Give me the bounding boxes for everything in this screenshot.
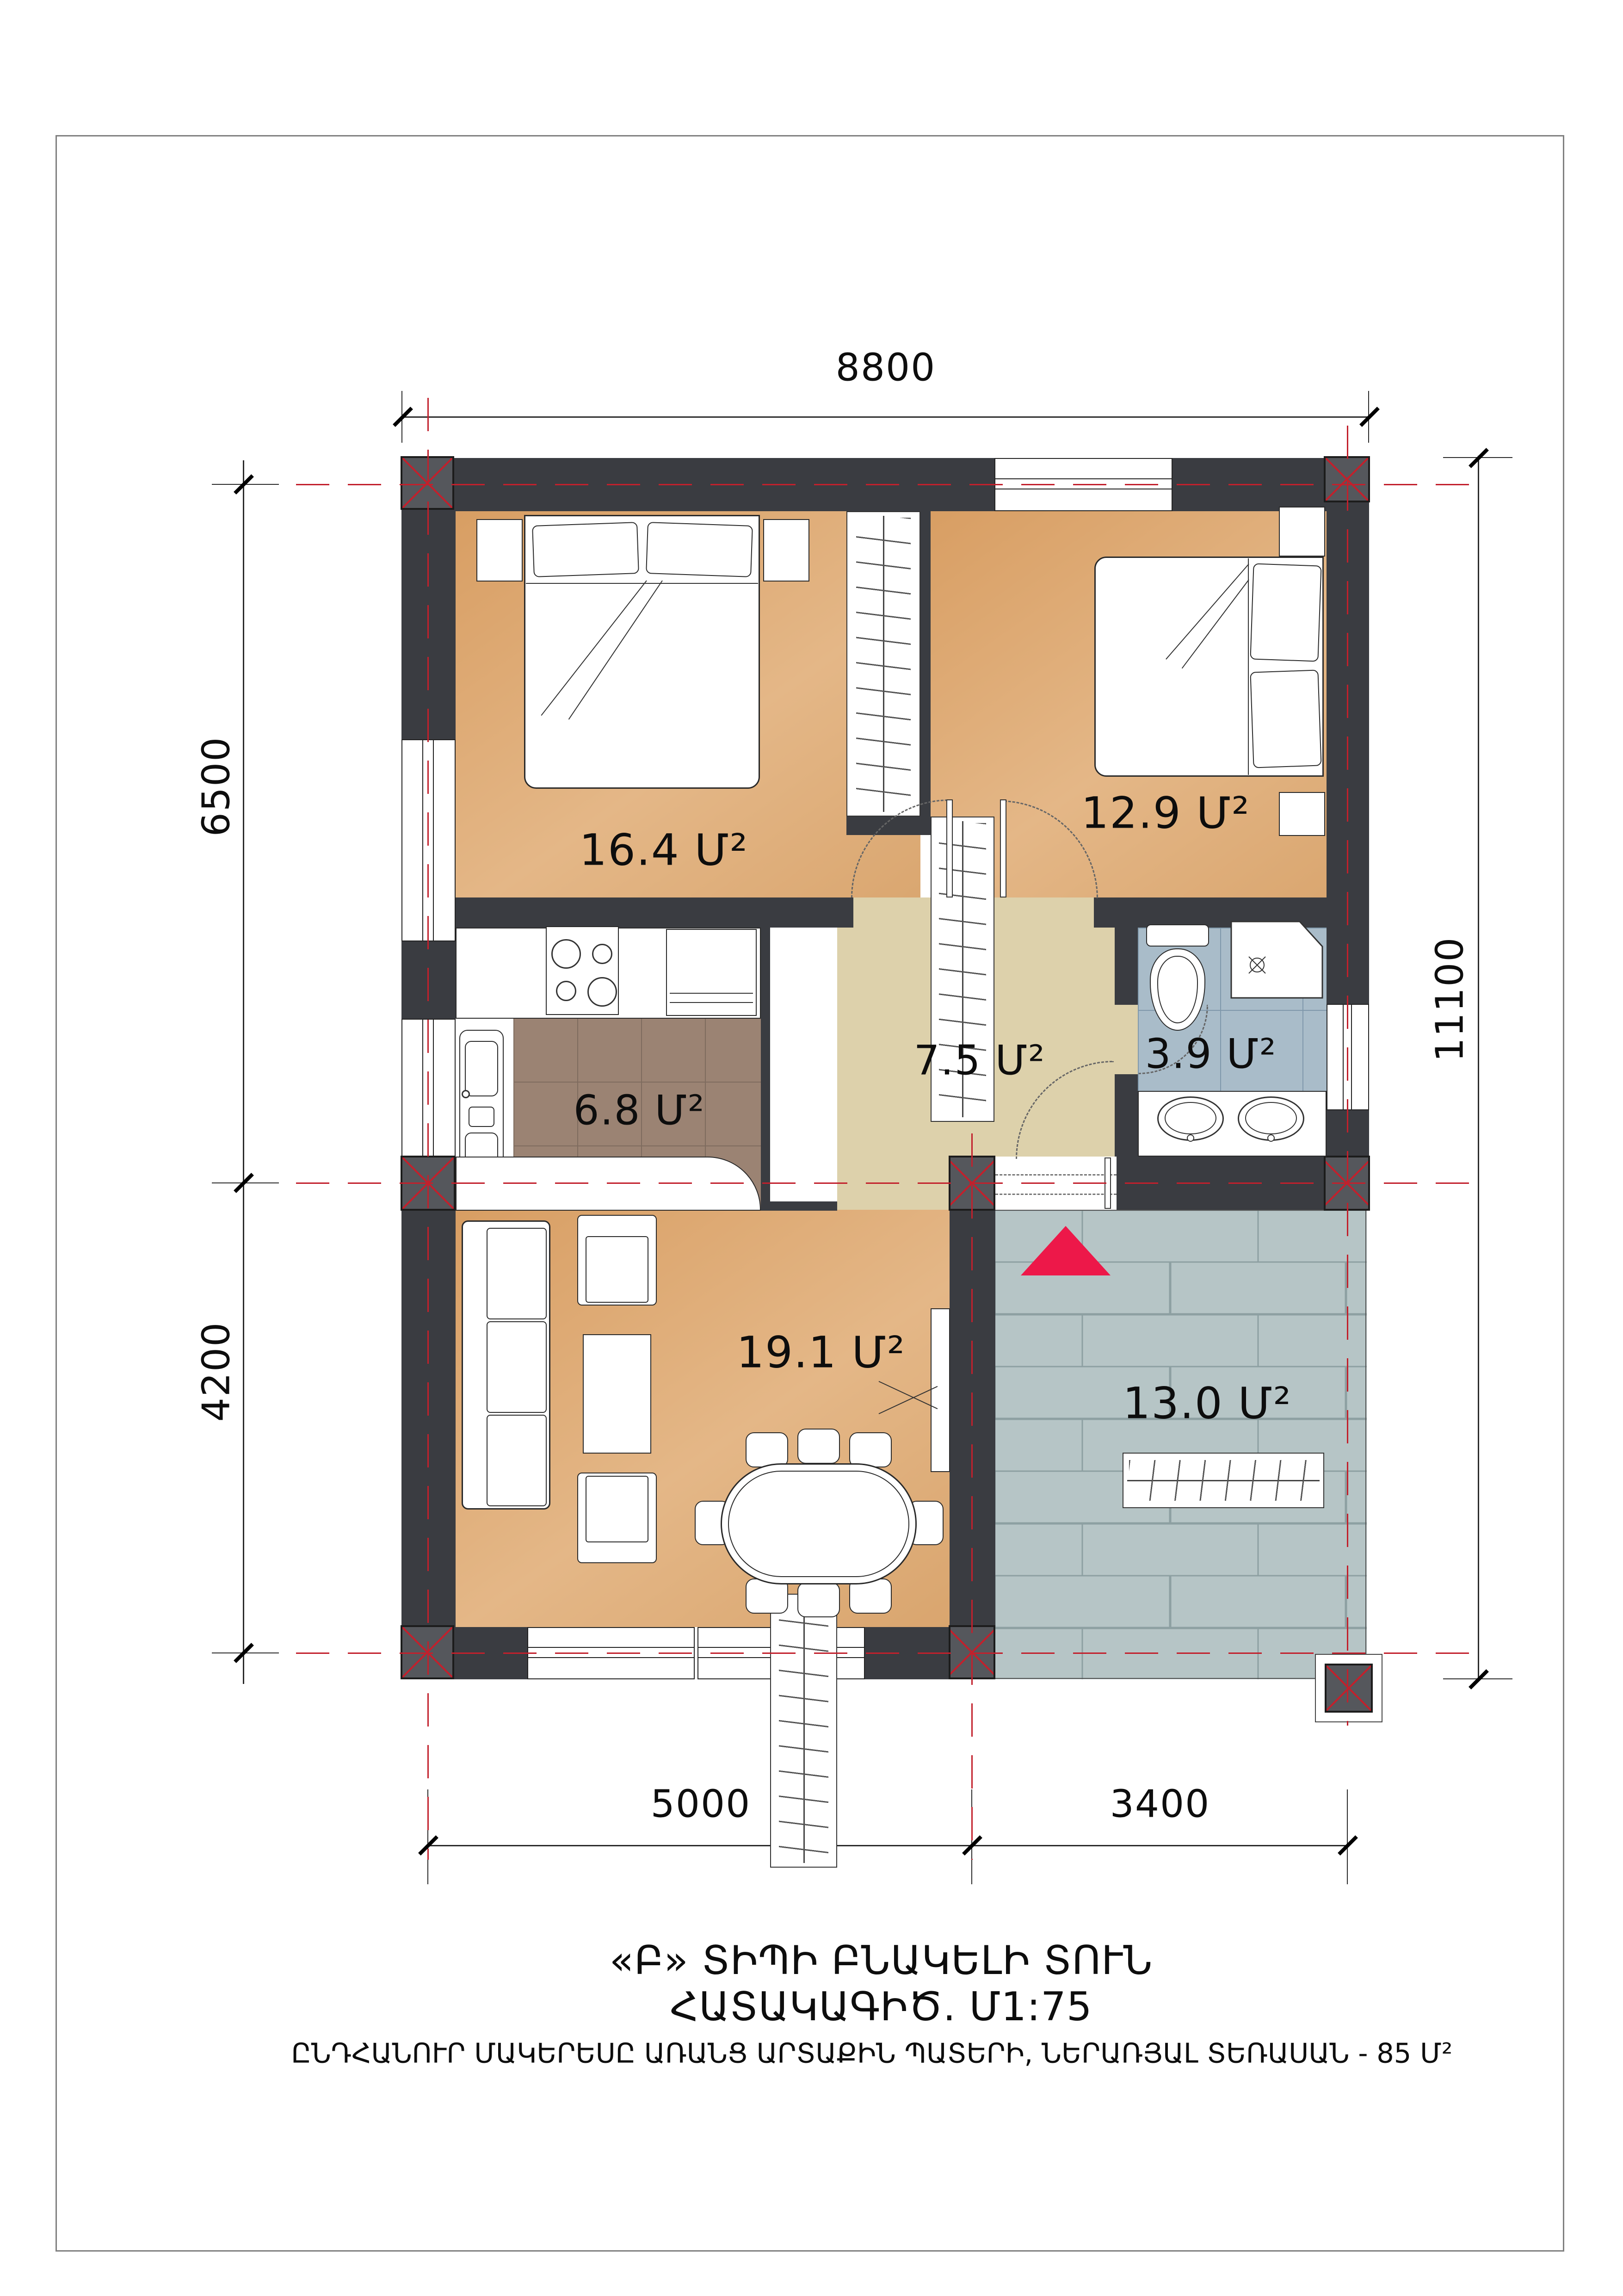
column-terrace-bottom-right	[1325, 1664, 1373, 1713]
room-label-bedroom-1: 16.4 Մ²	[579, 825, 748, 876]
bath-faucet-2	[1267, 1134, 1275, 1142]
fridge-detail	[670, 993, 753, 1003]
room-label-terrace: 13.0 Մ²	[1123, 1379, 1291, 1429]
dim-label-bottom-left: 5000	[651, 1782, 751, 1826]
wardrobe-bedroom-2	[1123, 1453, 1324, 1508]
stove-burner-3	[556, 981, 576, 1001]
dining-table-inner	[728, 1471, 909, 1577]
wall-bath-partition-2	[1115, 1074, 1138, 1157]
stove-burner-1	[551, 939, 581, 969]
dim-label-bottom-right: 3400	[1110, 1782, 1210, 1826]
axis-horizontal-bottom	[296, 1652, 1478, 1654]
wall-bath-partition-1	[1115, 928, 1138, 1005]
sofa-cushion-3	[487, 1415, 547, 1506]
bed-1-blanket-line	[526, 583, 758, 584]
sink-tray	[469, 1107, 494, 1127]
nightstand-1-left	[476, 519, 523, 582]
stove-burner-4	[587, 977, 617, 1007]
dining-chair-5	[797, 1582, 840, 1617]
room-label-bedroom-2: 12.9 Մ²	[1081, 788, 1250, 839]
title-line-3: ԸՆԴՀԱՆՈՒՐ ՄԱԿԵՐԵՍԸ ԱՌԱՆՑ ԱՐՏԱՔԻՆ ՊԱՏԵՐԻ,…	[291, 2037, 1453, 2069]
nightstand-2-top	[1279, 507, 1325, 557]
sink-basin-top	[465, 1041, 498, 1096]
shower-tray	[1230, 921, 1324, 999]
room-label-hallway: 7.5 Մ²	[914, 1037, 1046, 1084]
dim-label-left-lower: 4200	[195, 1322, 239, 1422]
bath-sink-1-inner	[1165, 1102, 1216, 1134]
dim-label-right: 11100	[1428, 937, 1472, 1062]
bed-1-pillow-left	[532, 522, 639, 577]
hall-closet	[770, 1594, 837, 1868]
door-leaf-bedroom-2	[1000, 799, 1006, 897]
sofa-cushion-1	[487, 1228, 547, 1319]
armchair-bottom-seat	[586, 1476, 648, 1542]
wall-between-bedrooms	[920, 511, 931, 817]
axis-vertical-right	[1347, 426, 1348, 1726]
axis-vertical-left	[427, 398, 429, 1860]
title-line-2: ՀԱՏԱԿԱԳԻԾ. Մ1:75	[670, 1984, 1092, 2030]
dim-line-left	[243, 460, 244, 1684]
door-leaf-bedroom-1	[946, 799, 953, 897]
wall-hall-closet-bottom	[761, 1201, 837, 1211]
kitchen-faucet	[462, 1090, 470, 1098]
dim-label-left-upper: 6500	[195, 736, 239, 837]
bath-sink-2-inner	[1245, 1102, 1297, 1134]
entrance-dash-2	[995, 1194, 1117, 1195]
wall-bedrooms-south-1	[456, 897, 853, 928]
closet-bedroom-1	[846, 511, 920, 817]
dim-line-top	[402, 416, 1369, 418]
axis-vertical-mid	[971, 1133, 973, 1860]
stove-burner-2	[592, 944, 612, 964]
room-label-kitchen: 6.8 Մ²	[574, 1087, 705, 1134]
bed-1-pillow-right	[646, 522, 753, 577]
tv-panel	[931, 1308, 950, 1472]
axis-horizontal-mid	[296, 1182, 1478, 1184]
bath-faucet-1	[1187, 1134, 1194, 1142]
dim-label-top: 8800	[836, 346, 936, 390]
axis-horizontal-top	[296, 484, 1478, 485]
nightstand-1-right	[763, 519, 809, 582]
dining-chair-1	[746, 1432, 788, 1467]
dining-chair-2	[797, 1429, 840, 1464]
coffee-table	[583, 1334, 651, 1454]
toilet-tank	[1146, 924, 1209, 947]
room-terrace-floor	[994, 1210, 1367, 1679]
wall-hall-closet-left	[761, 928, 770, 1211]
nightstand-2-bottom	[1279, 792, 1325, 836]
room-label-bathroom: 3.9 Մ²	[1145, 1030, 1277, 1078]
bed-2-pillow-bottom	[1250, 669, 1321, 768]
entrance-triangle-marker	[1021, 1226, 1111, 1275]
armchair-top-seat	[586, 1236, 648, 1303]
room-label-living: 19.1 Մ²	[736, 1328, 905, 1378]
sofa-cushion-2	[487, 1321, 547, 1413]
dim-line-bottom	[428, 1845, 1348, 1846]
drawing-sheet: 8800 6500 4200 11100 5000 3400 16.4 Մ² 1…	[0, 0, 1623, 2296]
bed-2-blanket-line	[1248, 558, 1249, 775]
dining-chair-3	[849, 1432, 892, 1467]
title-line-1: «Բ» ՏԻՊԻ ԲՆԱԿԵԼԻ ՏՈՒՆ	[610, 1937, 1153, 1984]
dim-ext-bottom-3	[1347, 1789, 1348, 1884]
entrance-dash-1	[995, 1174, 1117, 1176]
dim-line-right	[1478, 456, 1479, 1682]
bed-2-pillow-top	[1250, 563, 1321, 662]
